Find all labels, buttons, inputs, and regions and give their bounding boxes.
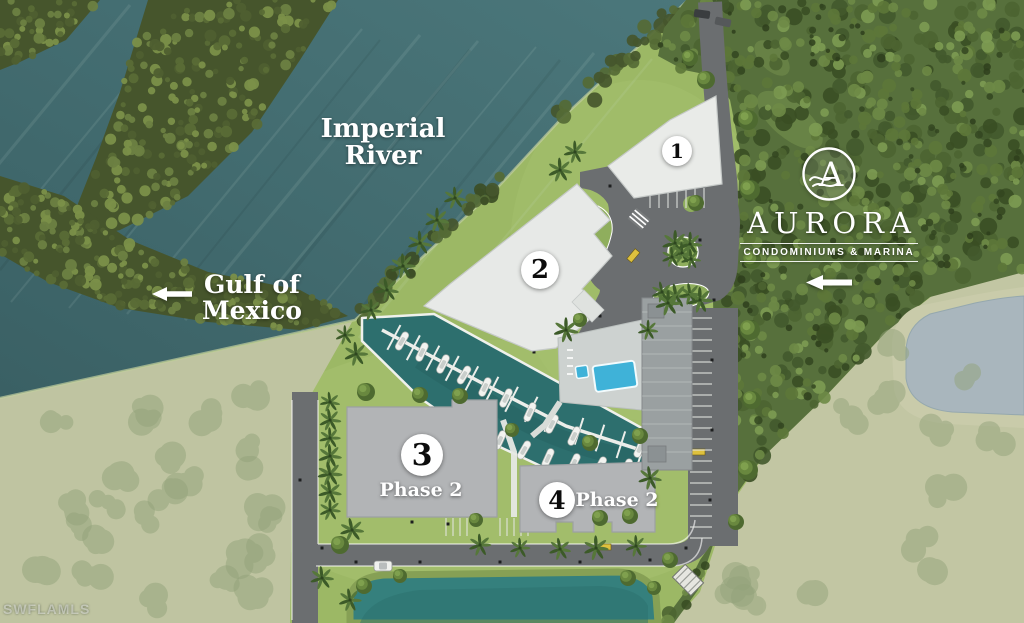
tree bbox=[743, 391, 761, 409]
logo-divider bbox=[740, 261, 918, 262]
entrance-arrow-icon bbox=[806, 275, 852, 290]
aurora-logo: A AURORA CONDOMINIUMS & MARINA bbox=[740, 146, 918, 295]
tree bbox=[393, 569, 407, 583]
building-4-phase-label: Phase 2 bbox=[575, 489, 658, 511]
tree bbox=[356, 578, 372, 594]
logo-divider bbox=[740, 243, 918, 244]
site-plan-map: Imperial River Gulf of Mexico A AURORA C… bbox=[0, 0, 1024, 623]
tree bbox=[592, 510, 608, 526]
building-3-phase-label: Phase 2 bbox=[379, 479, 462, 501]
building-4-badge: 4 bbox=[539, 482, 575, 518]
building-3-badge: 3 bbox=[401, 434, 443, 476]
imperial-river-label: Imperial River bbox=[308, 116, 458, 171]
aurora-monogram-icon: A bbox=[801, 146, 857, 202]
river-label-line2: River bbox=[308, 143, 458, 170]
gulf-label-line1: Gulf of bbox=[202, 272, 302, 298]
aurora-tagline: CONDOMINIUMS & MARINA bbox=[740, 247, 918, 258]
tree bbox=[662, 552, 678, 568]
tree bbox=[452, 388, 468, 404]
tree bbox=[738, 460, 758, 480]
tree bbox=[331, 536, 349, 554]
tree bbox=[505, 423, 519, 437]
gulf-arrow-icon bbox=[152, 287, 192, 301]
tree bbox=[740, 320, 760, 340]
tree bbox=[682, 50, 698, 66]
car bbox=[374, 561, 392, 571]
tree bbox=[582, 435, 598, 451]
tree bbox=[738, 110, 758, 130]
tree bbox=[632, 428, 648, 444]
tree bbox=[357, 383, 375, 401]
building-1-badge: 1 bbox=[662, 136, 692, 166]
tree bbox=[697, 71, 715, 89]
tree bbox=[647, 581, 661, 595]
tree bbox=[620, 570, 636, 586]
gulf-of-mexico-label: Gulf of Mexico bbox=[152, 272, 302, 325]
aurora-name: AURORA bbox=[740, 206, 918, 240]
tree bbox=[573, 313, 587, 327]
tree bbox=[412, 387, 428, 403]
svg-text:A: A bbox=[818, 155, 844, 195]
building-2-badge: 2 bbox=[521, 251, 559, 289]
river-label-line1: Imperial bbox=[308, 116, 458, 143]
gulf-label-line2: Mexico bbox=[202, 298, 302, 324]
tree bbox=[688, 195, 704, 211]
tree bbox=[469, 513, 483, 527]
watermark: SWFLAMLS bbox=[3, 601, 90, 617]
tree bbox=[728, 514, 744, 530]
